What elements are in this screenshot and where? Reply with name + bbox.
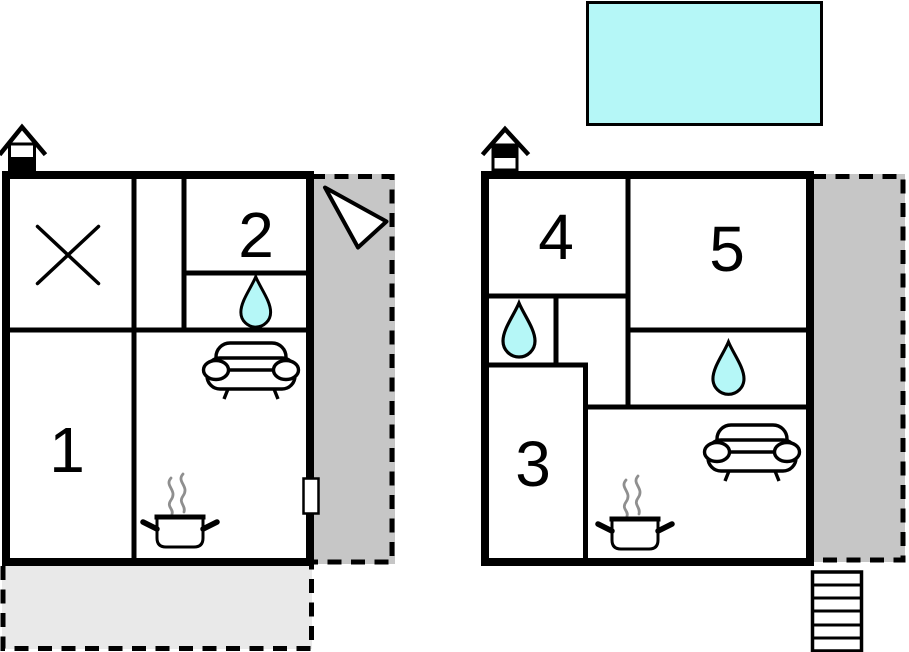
pot-handle bbox=[598, 524, 612, 531]
pot-body bbox=[612, 518, 658, 549]
stove-pot-icon bbox=[598, 476, 672, 549]
sofa-armrest bbox=[274, 361, 299, 380]
floor-plan-drawing: 1 2 bbox=[0, 0, 909, 652]
steam-line bbox=[636, 476, 640, 514]
drop-shape bbox=[241, 277, 271, 327]
pot-handle bbox=[203, 522, 217, 529]
chimney-fill bbox=[10, 157, 35, 170]
sofa-icon bbox=[705, 425, 800, 481]
steam-line bbox=[624, 480, 628, 516]
sofa-icon bbox=[204, 343, 299, 399]
room-label-3: 3 bbox=[515, 428, 551, 500]
entrance-door bbox=[304, 479, 319, 514]
building-outline-right bbox=[485, 175, 810, 562]
stove-pot-icon bbox=[143, 474, 217, 547]
chimney-house-icon bbox=[484, 129, 527, 170]
shower-drop-icon bbox=[241, 277, 271, 327]
chimney-house-icon bbox=[1, 127, 44, 170]
window-x-icon bbox=[38, 227, 99, 284]
room-label-2: 2 bbox=[238, 199, 274, 271]
room-label-1: 1 bbox=[49, 414, 85, 486]
stairs-icon bbox=[813, 572, 862, 651]
interior-walls-right bbox=[485, 175, 810, 562]
steam-line bbox=[169, 478, 173, 514]
room-label-5: 5 bbox=[709, 213, 745, 285]
sofa-armrest bbox=[705, 443, 730, 462]
room-label-4: 4 bbox=[538, 201, 574, 273]
drop-shape bbox=[713, 342, 744, 394]
floor-plan-left: 1 2 bbox=[1, 127, 395, 649]
pot-handle bbox=[143, 522, 157, 529]
shower-drop-icon bbox=[713, 342, 744, 394]
chimney-fill bbox=[493, 145, 517, 158]
sofa-armrest bbox=[775, 443, 800, 462]
shower-drop-icon bbox=[503, 303, 535, 357]
pot-body bbox=[157, 516, 203, 547]
terrace-area bbox=[810, 174, 905, 562]
floor-plan-right: 3 4 5 bbox=[484, 3, 905, 652]
floor-plan-canvas: 1 2 bbox=[0, 0, 909, 652]
swimming-pool bbox=[588, 3, 822, 125]
steam-line bbox=[181, 474, 185, 512]
pot-handle bbox=[658, 524, 672, 531]
patio-area bbox=[2, 566, 312, 649]
sofa-armrest bbox=[204, 361, 229, 380]
drop-shape bbox=[503, 303, 535, 357]
